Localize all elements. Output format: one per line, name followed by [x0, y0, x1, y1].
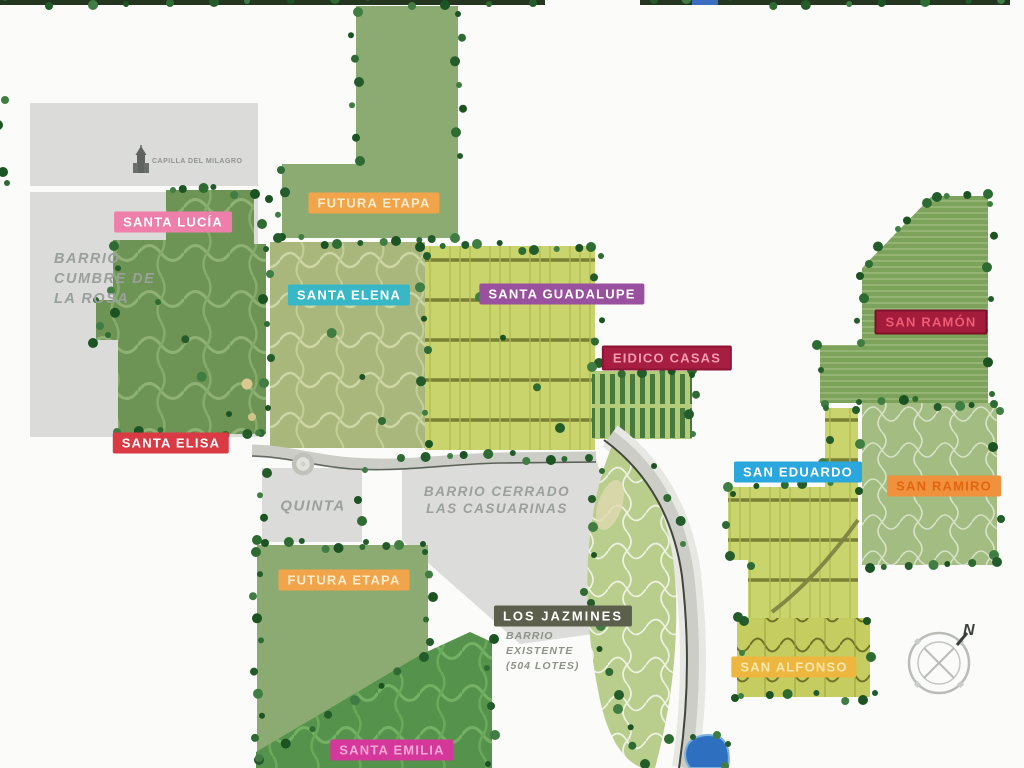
area-santa-elena	[270, 242, 425, 448]
area-santa-guadalupe	[425, 246, 595, 450]
label-santa-guadalupe: SANTA GUADALUPE	[479, 284, 644, 305]
compass-rose: N	[909, 622, 975, 693]
roundabout-center	[301, 462, 306, 467]
top-edge-band	[0, 0, 1010, 5]
label-los-jazmines: LOS JAZMINES	[494, 606, 632, 627]
pond	[248, 413, 256, 421]
label-santa-emilia: SANTA EMILIA	[330, 740, 453, 761]
area-eidico-casas	[592, 371, 692, 439]
label-santa-lucia: SANTA LUCÍA	[114, 212, 232, 233]
area-san-eduardo	[728, 408, 858, 622]
label-santa-elena: SANTA ELENA	[288, 285, 410, 306]
label-futura-etapa-north: FUTURA ETAPA	[308, 193, 439, 214]
label-san-ramon: SAN RAMÓN	[875, 310, 988, 335]
capilla-caption: CAPILLA DEL MILAGRO	[152, 158, 242, 165]
note-los-jazmines-existente: BARRIO EXISTENTE (504 LOTES)	[506, 629, 579, 674]
masterplan-map: N CAPILLA DEL MILAGRO BARRIO CUMBRE DE L…	[0, 0, 1024, 768]
label-san-alfonso: SAN ALFONSO	[731, 657, 856, 678]
note-quinta: QUINTA	[280, 498, 345, 515]
label-san-ramiro: SAN RAMIRO	[887, 476, 1001, 497]
church-icon	[132, 145, 150, 173]
label-eidico-casas: EIDICO CASAS	[602, 346, 732, 371]
area-san-ramon	[820, 196, 988, 403]
label-santa-elisa: SANTA ELISA	[113, 433, 229, 454]
pond	[242, 379, 253, 390]
compass-north-label: N	[963, 622, 975, 639]
label-futura-etapa-south: FUTURA ETAPA	[278, 570, 409, 591]
note-las-casuarinas: BARRIO CERRADO LAS CASUARINAS	[424, 483, 570, 517]
label-san-eduardo: SAN EDUARDO	[734, 462, 862, 483]
note-cumbre-de-la-rosa: BARRIO CUMBRE DE LA ROSA	[54, 249, 155, 309]
